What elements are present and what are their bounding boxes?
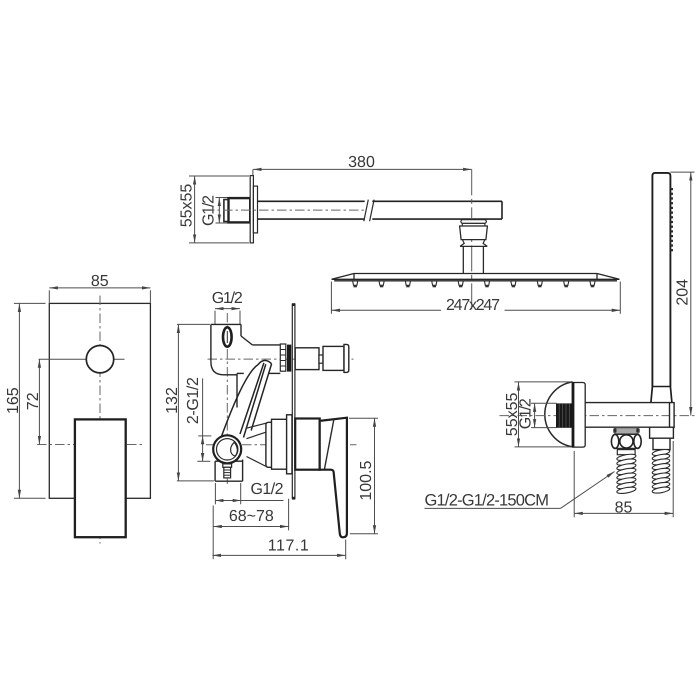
- svg-text:G1/2: G1/2: [251, 481, 284, 498]
- svg-text:117.1: 117.1: [268, 537, 309, 554]
- svg-text:G1/2-G1/2-150CM: G1/2-G1/2-150CM: [425, 492, 550, 510]
- svg-text:55x55: 55x55: [179, 184, 196, 228]
- svg-text:100.5: 100.5: [358, 460, 375, 500]
- svg-text:380: 380: [348, 154, 375, 171]
- svg-text:204: 204: [675, 279, 692, 306]
- svg-text:68~78: 68~78: [229, 508, 274, 525]
- svg-text:G1/2: G1/2: [212, 290, 243, 307]
- svg-text:2-G1/2: 2-G1/2: [185, 377, 202, 424]
- svg-text:85: 85: [615, 500, 633, 517]
- svg-text:247x247: 247x247: [446, 297, 500, 314]
